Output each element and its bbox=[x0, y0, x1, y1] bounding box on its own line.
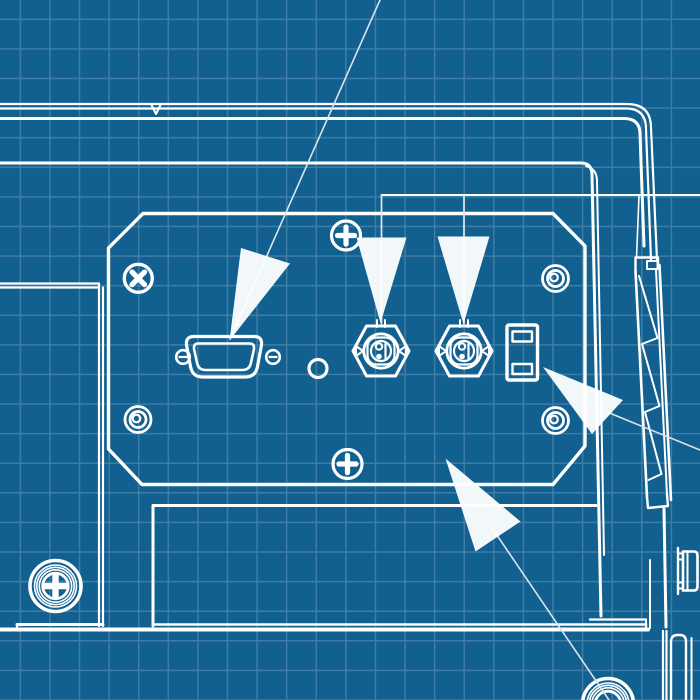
bnc-connector-left bbox=[353, 320, 409, 376]
phillips-screw-top bbox=[332, 221, 361, 250]
chassis-screw-bottom-left bbox=[30, 561, 81, 612]
dsub-boss-right bbox=[266, 350, 280, 364]
rivet-bottom-right bbox=[543, 408, 569, 434]
callout-arrow-dsub bbox=[230, 248, 291, 341]
recess-rect bbox=[153, 506, 596, 627]
chassis-screw-bottom-right bbox=[583, 679, 634, 700]
slide-switch bbox=[507, 325, 538, 380]
device-outline bbox=[0, 104, 657, 630]
callout-arrow-bnc-right bbox=[438, 237, 490, 325]
rear-panel-drawing bbox=[0, 0, 700, 700]
rear-io-panel bbox=[109, 214, 586, 485]
callout-arrow-bnc-left bbox=[357, 238, 407, 324]
side-rail-clip bbox=[678, 548, 698, 594]
bottom-right-rails bbox=[663, 631, 692, 700]
x-slot-screw bbox=[124, 264, 152, 292]
bnc-connector-right bbox=[436, 320, 492, 376]
phillips-screw-bottom bbox=[333, 450, 362, 479]
leader-recess bbox=[490, 525, 609, 700]
left-side-box bbox=[0, 284, 103, 630]
panel-hole bbox=[309, 360, 327, 378]
rivet-top-right bbox=[543, 266, 569, 292]
rivet-left bbox=[125, 407, 151, 433]
blueprint-canvas bbox=[0, 0, 700, 700]
dsub-connector bbox=[176, 337, 280, 378]
